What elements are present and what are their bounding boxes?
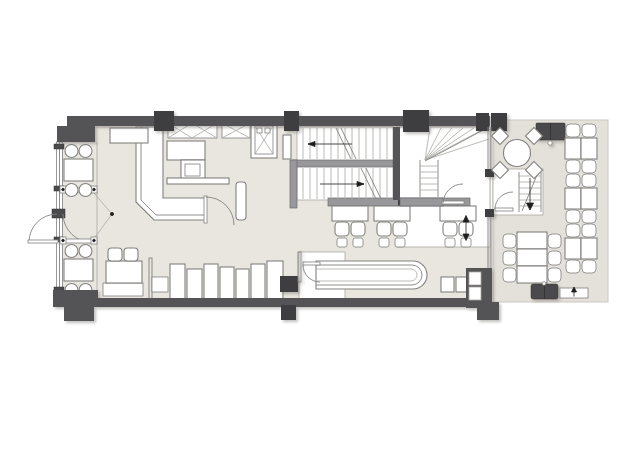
low-cabinet [152,277,168,292]
stair-party-wall [393,127,400,200]
equipment-unit [251,264,265,303]
kitchen-door-leaf [204,196,207,223]
rope-post [110,212,113,215]
terrace-step-plate [560,287,588,298]
stool [337,238,347,247]
stair-hall-rail [400,198,443,206]
chair [79,184,92,197]
terrace-service-unit [531,282,558,299]
corner-inset [469,287,481,300]
chair [351,222,365,236]
control [265,128,270,133]
floor-plan-canvas [0,0,640,452]
chair [503,268,516,282]
table [565,188,581,209]
chair [79,145,92,158]
stair-side-wall [290,160,297,208]
table [374,206,410,221]
table [64,259,93,281]
structural-column [403,110,429,132]
seat-base [103,283,143,296]
chair [566,260,580,273]
table [581,188,597,209]
kitchen-island [167,178,229,184]
chair [548,251,561,265]
corner-foot-se [477,302,499,320]
corner-foot-sw [64,303,94,321]
cabinet [441,277,454,292]
stool [445,238,455,247]
equipment-unit [220,267,234,303]
chair [548,268,561,282]
post-dot [62,239,65,242]
chair [566,224,580,237]
equipment-unit [204,264,218,303]
equipment-unit [170,264,185,303]
chair [548,234,561,248]
chair [582,124,596,137]
table [581,238,597,259]
counter [167,141,205,160]
table [565,238,581,259]
round-table [504,140,531,167]
post-dot [93,239,96,242]
stool [379,238,389,247]
sink [185,164,200,176]
host-stand [236,182,246,220]
station-knob [548,141,552,145]
long-table-group [503,232,561,283]
chair [566,124,580,137]
chair [335,222,349,236]
chair [566,210,580,223]
stair-hall-door-leaf [442,201,464,204]
control [257,128,262,133]
terrace-door-leaf [495,208,513,211]
chair [566,160,580,173]
barrier-rail-2 [63,239,94,243]
table [517,232,547,249]
wall-pier-foot [281,305,296,320]
table [517,266,547,283]
table [581,138,597,159]
chair [582,160,596,173]
wall-cabinet [110,128,148,143]
chair [443,222,457,236]
landing-rail [292,160,393,167]
structural-column [154,111,174,131]
chair [393,222,407,236]
structural-column [476,113,489,131]
table [64,159,93,181]
chair [79,245,92,258]
chair [377,222,391,236]
chair [65,145,78,158]
seat-back [106,261,142,283]
stool [395,238,405,247]
dumbwaiter [251,122,277,158]
floor-plan-drawing [0,0,640,452]
cushion [124,248,138,261]
chair [582,224,596,237]
corner-wall-nw [57,126,95,142]
door-jamb [485,209,494,217]
chair [566,174,580,187]
equipment-unit [236,269,249,303]
stool [353,238,363,247]
table [332,206,368,221]
table [517,249,547,266]
structural-column [284,111,299,131]
equipment-unit [187,269,202,303]
table [565,138,581,159]
post-dot [62,188,65,191]
cushion [108,248,122,261]
vestibule-door-leaf [303,262,320,265]
corner-inset [469,272,481,285]
chair [65,245,78,258]
unit-knob [542,282,546,286]
chair [503,251,516,265]
table [440,206,476,221]
chair [65,184,78,197]
bar-counter [316,261,427,289]
chair [503,234,516,248]
wall-pier [280,276,298,292]
exterior-door-leaf [28,240,58,243]
narrow-shelf [283,135,291,159]
post-dot [93,188,96,191]
chair [582,210,596,223]
chair [582,174,596,187]
chair [582,260,596,273]
